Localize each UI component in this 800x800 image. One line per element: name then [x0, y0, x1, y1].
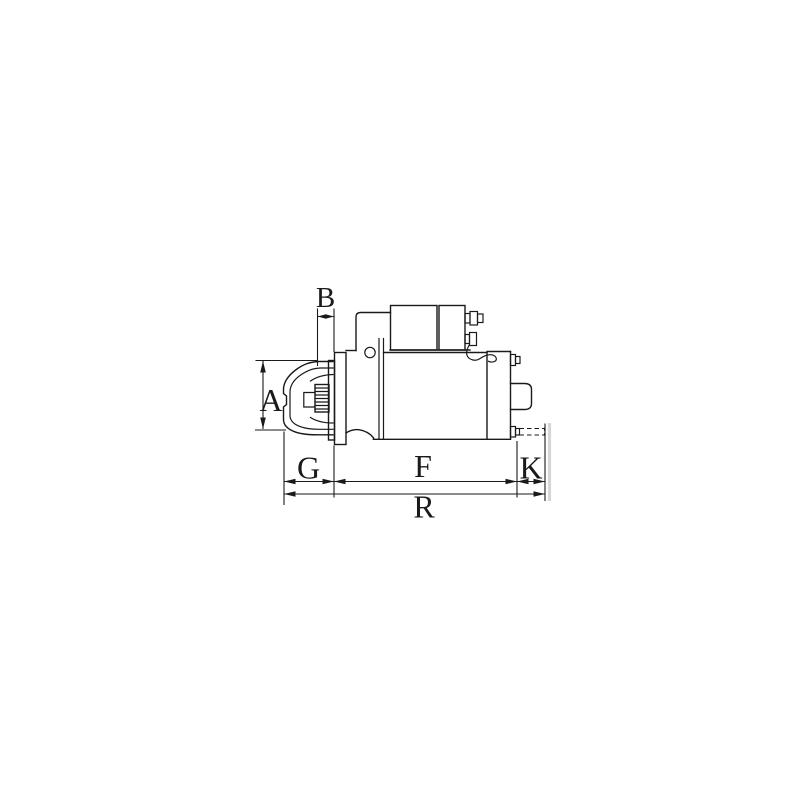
starter-motor-diagram: A B G F K R	[0, 0, 800, 800]
dimension-B-arrow-left	[318, 314, 327, 318]
solenoid-main-can	[391, 306, 438, 351]
rear-stud-upper	[511, 355, 521, 366]
rear-boss	[511, 384, 532, 410]
terminal-stud-upper-nut	[470, 312, 478, 326]
solenoid-bracket	[356, 313, 391, 351]
rear-stud-lower-base	[511, 427, 516, 438]
dimension-B-label: B	[316, 282, 335, 314]
rear-stud-lower	[511, 427, 520, 438]
terminal-stud-lower	[465, 333, 477, 346]
bracket-hole	[365, 347, 375, 357]
shaft-stub-dashed	[520, 429, 545, 436]
dimension-R-label: R	[413, 489, 435, 525]
pinion-hub	[304, 393, 315, 408]
terminal-stud-upper-tip	[478, 314, 484, 323]
dimension-A-arrow-down	[260, 418, 266, 430]
dimension-F-arrow-right	[506, 479, 518, 484]
rear-stud-upper-tip	[516, 357, 521, 364]
drawing-canvas: A B G F K R	[0, 0, 800, 800]
solenoid	[390, 306, 496, 363]
dimension-G-arrow-left	[284, 479, 296, 484]
rear-bracket	[487, 352, 545, 439]
dimension-K-label: K	[519, 450, 542, 486]
pinion-gear-teeth	[315, 388, 329, 409]
terminal-stud-upper-base	[465, 314, 470, 324]
dimension-R-arrow-right	[534, 491, 546, 496]
terminal-stud-lower-nut	[470, 333, 477, 346]
drive-end-cone-rib-top	[311, 375, 334, 382]
dimension-A-label: A	[259, 382, 282, 418]
drive-end-cone-rib-bottom	[311, 418, 334, 424]
solenoid-cap	[439, 306, 465, 351]
rear-stud-lower-tip	[516, 429, 520, 436]
dimension-B-arrow-right	[326, 314, 335, 318]
dimension-R-arrow-left	[284, 491, 296, 496]
dimension-G-arrow-right	[323, 479, 335, 484]
dimension-F-arrow-left	[334, 479, 346, 484]
dimension-A-arrow-up	[260, 361, 266, 373]
dimension-R: R	[284, 489, 545, 525]
dimension-chain-GFK: G F K	[284, 448, 545, 486]
starter-motor-outline	[284, 306, 545, 445]
dimension-G-label: G	[297, 450, 320, 486]
rear-stud-upper-base	[511, 355, 516, 366]
housing-bottom-step	[346, 430, 374, 440]
pinion-gear	[315, 385, 329, 413]
terminal-wire	[467, 346, 497, 363]
dimension-B: B	[316, 282, 335, 366]
mounting-flange	[335, 353, 347, 445]
dimension-F-label: F	[414, 448, 432, 484]
terminal-stud-upper	[465, 312, 483, 326]
